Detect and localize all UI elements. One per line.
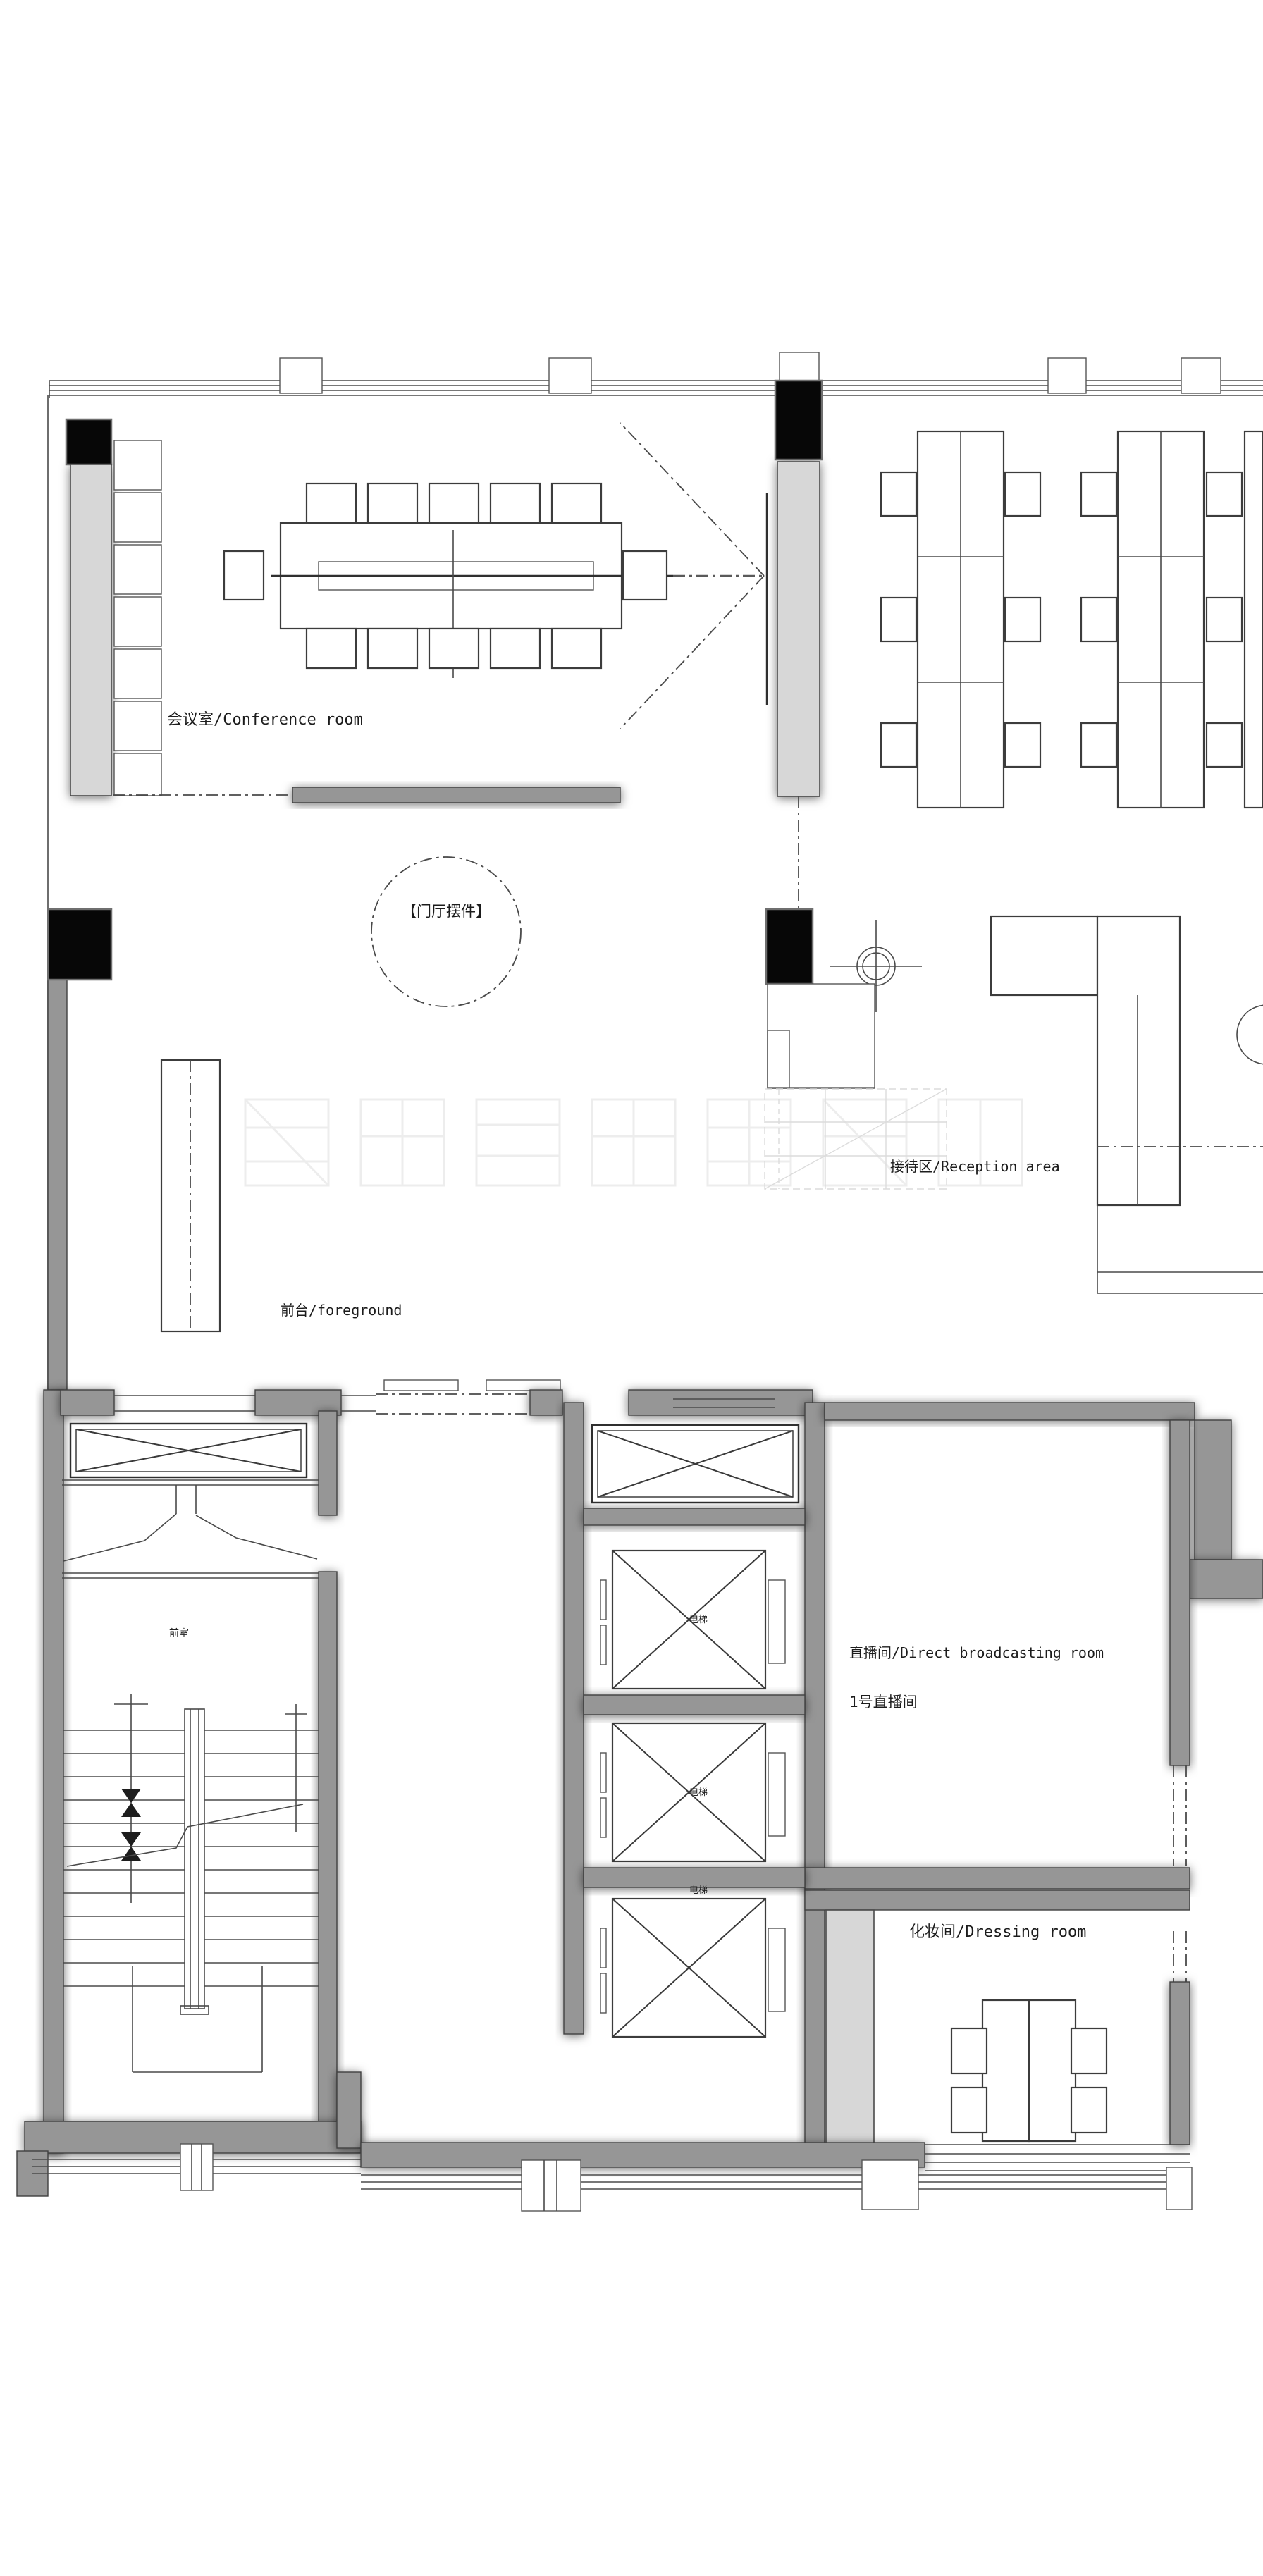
workstation-area (881, 431, 1263, 808)
ornament-dashed-circle (371, 857, 521, 1006)
north-curtain-wall (49, 352, 1263, 460)
dressing-room: 化妆间/Dressing room (826, 1910, 1107, 2145)
dressing-room-label: 化妆间/Dressing room (909, 1923, 1086, 1941)
shaft-wall (584, 1695, 805, 1715)
vestibule-doors (63, 1485, 317, 1561)
elevator-door (768, 1753, 785, 1836)
facade-mullion (1048, 358, 1086, 393)
facade-mullion (280, 358, 322, 393)
south-partition (292, 787, 620, 803)
dashed-opening (1173, 1931, 1186, 1982)
door-head (384, 1380, 458, 1391)
desk-cluster-b (1081, 431, 1263, 808)
facade-mullion (549, 358, 591, 393)
east-facade-jog (1190, 1560, 1263, 1598)
lobby-ornament-label: 【门厅摆件】 (402, 903, 491, 920)
elevator-label: 电梯 (689, 1615, 708, 1625)
west-shaft-wall (70, 464, 111, 796)
elevator-door (768, 1580, 785, 1663)
vestibule-label: 前室 (169, 1627, 189, 1639)
wall-pier (629, 1390, 813, 1415)
stair-treads (63, 1730, 319, 1986)
chair-arc (1237, 1005, 1263, 1064)
core-east-wall (805, 1403, 825, 2145)
reception-area-label: 接待区/Reception area (890, 1158, 1060, 1175)
door-head (486, 1380, 560, 1391)
stair-east-wall (319, 1411, 337, 1515)
front-desk-label: 前台/foreground (281, 1302, 402, 1319)
dressing-table (982, 2000, 1076, 2141)
structural-column (66, 419, 111, 464)
duct-shaft (70, 1424, 307, 1477)
south-door-west (180, 2144, 213, 2190)
lobby-ornament: 【门厅摆件】 (371, 857, 521, 1006)
dressing-west-band (826, 1910, 874, 2145)
south-mullion (862, 2160, 918, 2210)
room-divider-wall-2 (805, 1890, 1190, 1910)
front-desk: 前台/foreground (161, 1060, 402, 1331)
west-wall-strip (48, 980, 67, 1390)
broadcast-room-number: 1号直播间 (849, 1694, 918, 1711)
elevator-3: 电梯 (600, 1885, 785, 2037)
broadcast-north-wall (825, 1403, 1195, 1420)
wall-pier (530, 1390, 562, 1415)
elevator-2: 电梯 (600, 1723, 785, 1861)
dashed-opening (1173, 1765, 1186, 1866)
stair-east-wall (319, 1572, 337, 2121)
south-door-center (522, 2160, 581, 2211)
elevator-1: 电梯 (600, 1551, 785, 1689)
east-shaft-wall (777, 462, 820, 796)
structural-column (775, 381, 822, 460)
south-wall-center (361, 2143, 925, 2167)
shaft-wall (584, 1508, 805, 1525)
landing-outline (133, 1966, 262, 2072)
broadcast-room: 直播间/Direct broadcasting room 1号直播间 (849, 1644, 1104, 1711)
broadcast-east-wall (1170, 1420, 1190, 1765)
elevator-west-wall (564, 1403, 584, 2034)
reception-desk-group (991, 916, 1263, 1293)
structural-column (48, 909, 111, 980)
stair-direction-arrows (67, 1694, 307, 1903)
stairwell: 前室 (62, 1424, 319, 2072)
desk-cluster-a (881, 431, 1040, 808)
cased-opening (376, 1394, 530, 1414)
floor-plan-canvas: 会议室/Conference room (0, 0, 1263, 2576)
conference-room-label: 会议室/Conference room (167, 711, 363, 729)
elevator-door (768, 1928, 785, 2011)
elevator-duct-shaft (592, 1425, 799, 1503)
reception-area: 接待区/Reception area (765, 909, 1263, 1293)
broadcast-room-label: 直播间/Direct broadcasting room (849, 1644, 1104, 1661)
shaft-wall (584, 1868, 805, 1887)
wall-step (337, 2072, 361, 2148)
stair-handrail (180, 1709, 209, 2014)
structural-column (766, 909, 813, 984)
elevator-label: 电梯 (689, 1787, 708, 1798)
elevator-bank: 电梯 电梯 电梯 (584, 1425, 805, 2037)
east-facade-pier (1195, 1420, 1231, 1560)
wall-cabinets (114, 440, 161, 796)
reception-counter (768, 984, 875, 1088)
elevator-label: 电梯 (689, 1885, 708, 1896)
facade-mullion (1181, 358, 1221, 393)
west-core-wall (44, 1390, 63, 2153)
wall-pier (61, 1390, 114, 1415)
facade-mullion (780, 352, 819, 381)
south-corner-mullion (1166, 2167, 1192, 2210)
room-divider-wall (805, 1868, 1190, 1889)
dressing-east-wall (1170, 1982, 1190, 2145)
